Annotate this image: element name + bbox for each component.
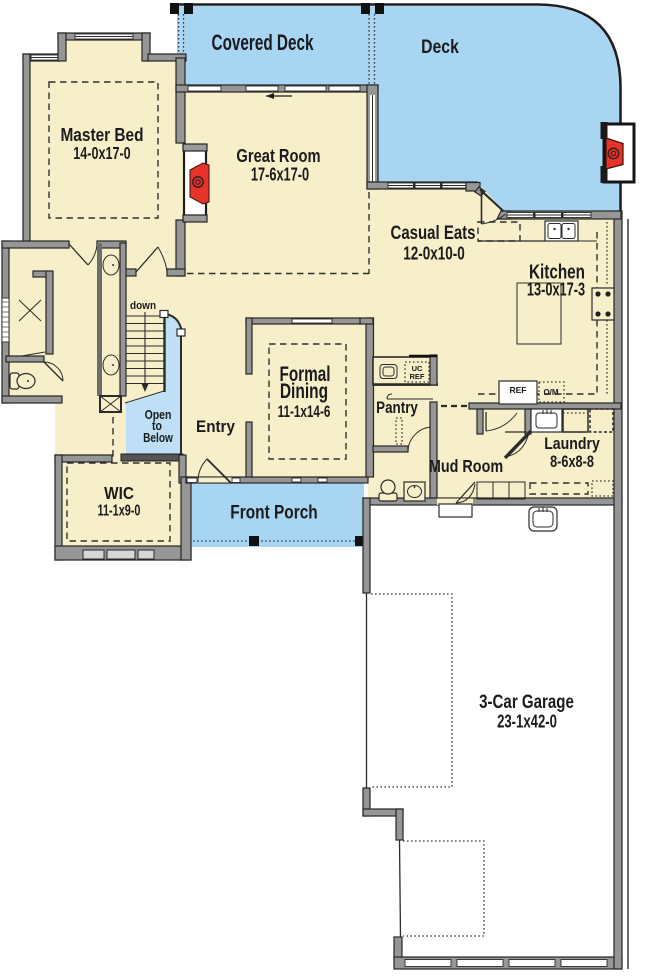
- svg-text:23-1x42-0: 23-1x42-0: [497, 711, 557, 732]
- svg-text:11-1x9-0: 11-1x9-0: [98, 501, 141, 519]
- svg-text:down: down: [130, 299, 156, 312]
- svg-text:REF: REF: [410, 372, 425, 381]
- svg-text:12-0x10-0: 12-0x10-0: [403, 244, 465, 265]
- svg-text:3-Car Garage: 3-Car Garage: [479, 690, 574, 712]
- svg-text:Below: Below: [143, 432, 173, 445]
- svg-text:Entry: Entry: [196, 417, 235, 436]
- svg-text:Great Room: Great Room: [236, 145, 320, 166]
- svg-text:Covered Deck: Covered Deck: [212, 31, 314, 55]
- svg-text:17-6x17-0: 17-6x17-0: [251, 165, 309, 185]
- svg-text:13-0x17-3: 13-0x17-3: [527, 280, 585, 300]
- svg-text:14-0x17-0: 14-0x17-0: [73, 144, 130, 164]
- svg-text:Laundry: Laundry: [544, 435, 600, 453]
- svg-text:Pantry: Pantry: [376, 399, 418, 418]
- svg-text:Mud Room: Mud Room: [429, 457, 503, 477]
- svg-text:11-1x14-6: 11-1x14-6: [278, 403, 331, 421]
- svg-text:Master Bed: Master Bed: [60, 125, 143, 146]
- svg-text:REF: REF: [510, 385, 527, 395]
- svg-text:8-6x8-8: 8-6x8-8: [550, 454, 594, 472]
- svg-text:O/M: O/M: [543, 388, 558, 397]
- svg-text:Front Porch: Front Porch: [230, 501, 317, 523]
- svg-text:Deck: Deck: [421, 36, 459, 58]
- svg-text:Dining: Dining: [280, 379, 328, 403]
- svg-text:Casual Eats: Casual Eats: [390, 222, 475, 243]
- svg-text:WIC: WIC: [104, 484, 134, 503]
